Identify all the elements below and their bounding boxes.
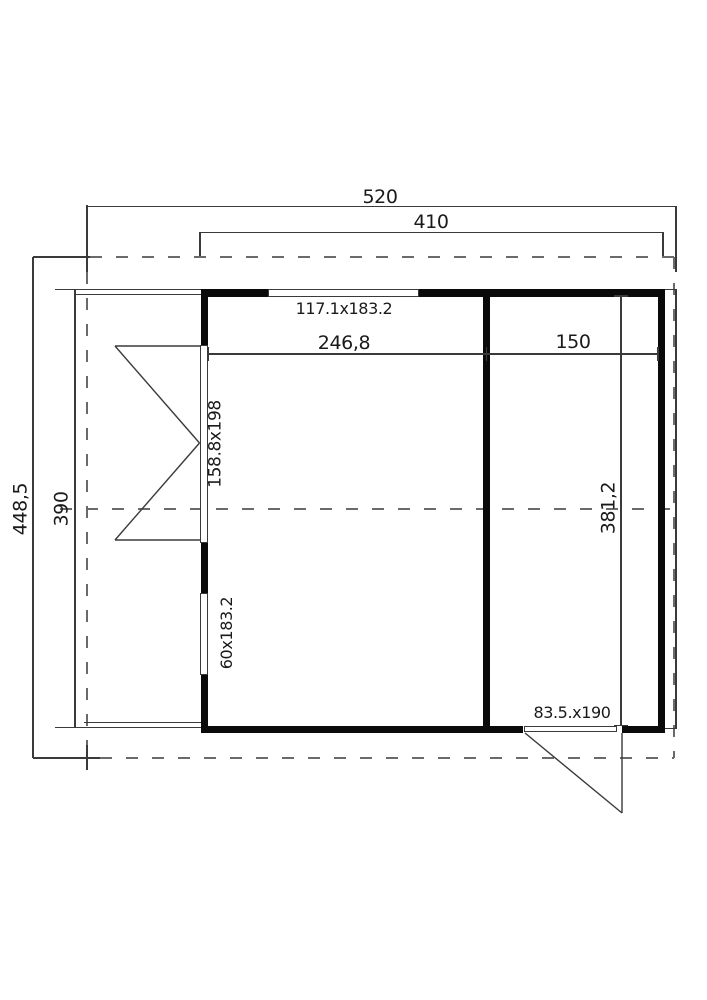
wall-bottom-left-segment bbox=[201, 726, 523, 734]
wall-right bbox=[658, 289, 665, 733]
dim-ext-wall-width-left bbox=[199, 232, 200, 258]
dim-tick-wall-depth-top bbox=[55, 289, 75, 290]
dim-tick-room-left bbox=[207, 347, 208, 361]
label-french-door-size: 158.8x198 bbox=[208, 400, 225, 488]
dim-tick-interior-depth-bottom bbox=[614, 725, 628, 726]
wall-bottom-right-segment bbox=[622, 726, 665, 734]
porch-top-edge-outer bbox=[75, 289, 202, 290]
dim-line-interior-depth bbox=[620, 296, 621, 726]
dim-ext-wall-width-right bbox=[662, 232, 663, 258]
dim-ext-overall-width-right bbox=[675, 206, 676, 272]
narrow-window-frame bbox=[200, 593, 208, 675]
porch-bottom-edge-outer bbox=[75, 727, 202, 728]
label-wall-width: 410 bbox=[413, 213, 448, 232]
wall-left-lower-segment bbox=[201, 675, 208, 733]
wall-top-right-segment bbox=[419, 289, 665, 297]
roof-outline-left-bottom-tick bbox=[86, 745, 87, 770]
dim-tick-room-right bbox=[657, 347, 658, 361]
roof-outline-top-dashed bbox=[90, 256, 676, 257]
dim-line-room-widths bbox=[208, 353, 658, 354]
label-front-window-size: 117.1x183.2 bbox=[296, 301, 393, 317]
front-window-frame bbox=[268, 289, 419, 297]
roof-outline-bottom-dashed bbox=[100, 757, 674, 758]
label-side-room-width: 150 bbox=[555, 333, 590, 352]
label-narrow-window-size: 60x183.2 bbox=[219, 597, 235, 669]
side-door-swing bbox=[525, 733, 622, 813]
porch-bottom-edge-inner bbox=[84, 722, 202, 723]
dim-line-overall-depth bbox=[32, 257, 33, 758]
dim-line-wall-depth-porch-edge bbox=[74, 289, 75, 728]
roof-outline-bottom-extension bbox=[33, 757, 100, 758]
eave-strip-right-top bbox=[665, 289, 676, 290]
label-overall-width: 520 bbox=[362, 188, 397, 207]
label-main-room-width: 246,8 bbox=[318, 334, 370, 353]
roof-outline-top-extension bbox=[33, 256, 90, 257]
french-door-swing-top bbox=[115, 346, 200, 443]
dim-tick-interior-depth-top bbox=[614, 295, 628, 296]
eave-strip-right-vertical bbox=[675, 289, 676, 729]
dim-tick-room-mid bbox=[486, 347, 487, 361]
label-overall-depth: 448,5 bbox=[12, 483, 31, 535]
side-door-leaf bbox=[524, 726, 617, 732]
porch-top-edge-inner bbox=[75, 294, 202, 295]
eave-strip-right-bottom bbox=[665, 728, 676, 729]
dim-ext-overall-width-left bbox=[86, 205, 87, 272]
label-interior-depth: 381,2 bbox=[600, 482, 619, 534]
dim-tick-wall-depth-bottom bbox=[55, 727, 75, 728]
roof-ridge-dashed bbox=[60, 508, 674, 509]
wall-left-middle-segment bbox=[201, 543, 208, 593]
label-side-door-size: 83.5.x190 bbox=[533, 705, 610, 721]
wall-top-left-segment bbox=[201, 289, 268, 297]
floor-plan-canvas: 520 410 448,5 390 246,8 150 381,2 117.1x… bbox=[0, 0, 707, 1000]
label-wall-depth: 390 bbox=[53, 491, 72, 526]
wall-left-upper-segment bbox=[201, 289, 208, 345]
french-door-swing-bottom bbox=[115, 443, 200, 540]
